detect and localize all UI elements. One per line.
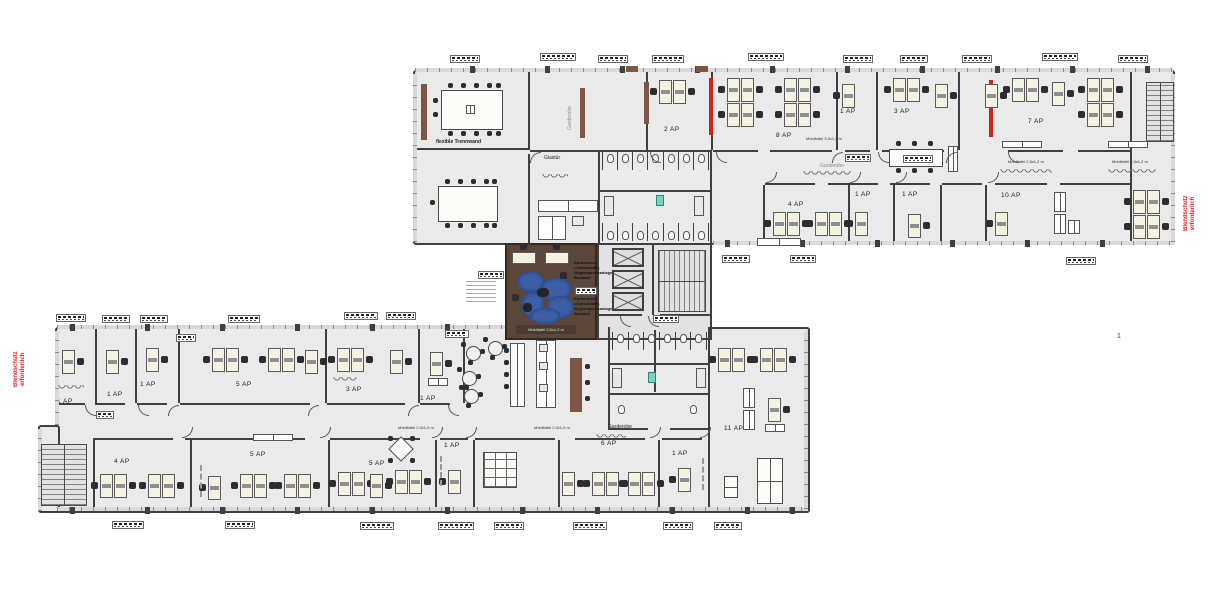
- wall: [328, 440, 330, 511]
- chair: [912, 168, 917, 173]
- partition-label: flexible Trennwand: [436, 139, 481, 145]
- desk: [1147, 215, 1160, 239]
- chair: [471, 223, 476, 228]
- toilet: [607, 231, 614, 240]
- chair: [846, 220, 853, 227]
- desk: [842, 84, 855, 108]
- chair: [1000, 92, 1007, 99]
- room-label: 5 AP: [250, 451, 290, 459]
- room-label: 8 AP: [776, 132, 816, 140]
- desk: [1101, 78, 1114, 102]
- desk: [995, 212, 1008, 236]
- window-band: [804, 331, 808, 509]
- chair: [619, 480, 626, 487]
- annotation-chip: [790, 255, 816, 263]
- desk: [760, 348, 773, 372]
- pillar: [70, 507, 75, 514]
- elevator: [612, 270, 644, 289]
- desk: [62, 350, 75, 374]
- desk: [774, 348, 787, 372]
- chair: [884, 86, 891, 93]
- pillar: [145, 324, 150, 331]
- wall: [135, 327, 137, 403]
- annotation-chip: [494, 522, 524, 530]
- lounge-board-label: Mobiltafel 2,5x1,2 m: [516, 325, 576, 334]
- toilet: [617, 334, 624, 343]
- work-table: [724, 476, 738, 498]
- bar-counter: [510, 343, 525, 407]
- chair: [1162, 223, 1169, 230]
- toilet: [648, 334, 655, 343]
- chair: [783, 406, 790, 413]
- pillar: [950, 240, 955, 247]
- annotation-chip: [1118, 55, 1148, 63]
- annotation-chip: [1042, 53, 1078, 61]
- desk-return: [765, 424, 785, 432]
- chair: [751, 356, 758, 363]
- chair: [496, 83, 501, 88]
- desk: [1133, 215, 1146, 239]
- wall: [440, 438, 468, 440]
- chair: [928, 141, 933, 146]
- pillar: [595, 507, 600, 514]
- wall: [876, 70, 878, 150]
- wall: [890, 183, 930, 185]
- desk: [226, 348, 239, 372]
- stall-divider: [632, 152, 633, 170]
- chair: [457, 367, 462, 372]
- room-label: 7 AP: [1028, 118, 1068, 126]
- wall: [848, 185, 850, 245]
- floor-plan: Mobiltafel 2,5x1,2 m flexible Trennwand …: [0, 0, 1229, 599]
- stall-divider: [693, 152, 694, 170]
- desk: [673, 80, 686, 104]
- wall: [325, 327, 327, 403]
- annotation-chip: [225, 521, 255, 529]
- chair: [718, 86, 725, 93]
- desk: [907, 78, 920, 102]
- chair: [504, 372, 509, 377]
- room-label: 4 AP: [114, 458, 154, 466]
- toilet: [637, 231, 644, 240]
- annotation-chip: [653, 315, 679, 323]
- chair: [912, 141, 917, 146]
- chair: [484, 223, 489, 228]
- annotation-chip: [478, 271, 504, 279]
- wall: [608, 363, 710, 365]
- coat-rail: [333, 377, 357, 384]
- chair: [433, 112, 438, 117]
- desk: [1101, 103, 1114, 127]
- desk: [1087, 78, 1100, 102]
- window-band: [415, 68, 1173, 72]
- chair: [329, 480, 336, 487]
- chair: [775, 111, 782, 118]
- desk: [606, 472, 619, 496]
- annotation-chip: [540, 53, 576, 61]
- chair: [553, 243, 560, 250]
- wall: [765, 183, 815, 185]
- media-board: [580, 88, 585, 138]
- wall: [770, 150, 832, 152]
- desk: [718, 348, 731, 372]
- chair: [756, 86, 763, 93]
- desk: [298, 474, 311, 498]
- desk: [908, 214, 921, 238]
- window-band: [413, 74, 417, 242]
- pillar: [545, 66, 550, 73]
- pillar: [220, 324, 225, 331]
- warning-blendschutz-right: Blendschutz erforderlich: [1183, 183, 1197, 243]
- room-label: 1 AP: [107, 391, 147, 399]
- wall: [330, 438, 420, 440]
- chair: [91, 482, 98, 489]
- vertical-note: [200, 465, 204, 497]
- chair: [492, 179, 497, 184]
- wall: [893, 185, 895, 245]
- desk: [114, 474, 127, 498]
- chair: [487, 83, 492, 88]
- sideboard: [253, 434, 293, 441]
- pillar: [145, 507, 150, 514]
- desk: [162, 474, 175, 498]
- room-label: 1 AP: [140, 381, 180, 389]
- chair: [241, 356, 248, 363]
- chair: [775, 86, 782, 93]
- toilet: [690, 405, 697, 414]
- desk: [1147, 190, 1160, 214]
- toilet: [664, 334, 671, 343]
- vertical-note: [440, 456, 444, 486]
- stall-divider: [647, 223, 648, 241]
- stall-divider: [602, 223, 603, 241]
- chair: [448, 83, 453, 88]
- wall: [418, 327, 420, 403]
- chair: [483, 337, 488, 342]
- chair: [405, 358, 412, 365]
- chair: [275, 482, 282, 489]
- room-label: 1 AP: [855, 191, 895, 199]
- stall-divider: [617, 223, 618, 241]
- desk: [798, 103, 811, 127]
- toilet: [668, 154, 675, 163]
- desk: [268, 348, 281, 372]
- sideboard: [1002, 141, 1042, 148]
- kitchen-counter: [538, 200, 598, 212]
- pillar: [470, 66, 475, 73]
- coat-rail: [1000, 169, 1052, 176]
- stall-divider: [617, 152, 618, 170]
- annotation-chip: [228, 315, 260, 323]
- chair: [458, 179, 463, 184]
- desk: [1087, 103, 1100, 127]
- chair: [764, 220, 771, 227]
- coat-rail: [596, 434, 626, 441]
- desk: [390, 350, 403, 374]
- chair: [328, 356, 335, 363]
- wall: [608, 393, 710, 395]
- core-stair: [658, 250, 706, 312]
- desk: [985, 84, 998, 108]
- desk: [395, 470, 408, 494]
- cabinet: [1054, 214, 1066, 234]
- chair: [388, 436, 393, 441]
- kitchen-appliance: [572, 216, 584, 226]
- chair: [585, 364, 590, 369]
- wall: [413, 148, 530, 150]
- wall: [93, 438, 173, 440]
- chair: [474, 131, 479, 136]
- chair: [560, 272, 567, 279]
- desk: [430, 352, 443, 376]
- wall: [942, 183, 982, 185]
- desk: [305, 350, 318, 374]
- annotation-chip: [56, 314, 86, 322]
- annotation-chip: [445, 330, 469, 338]
- chair: [424, 478, 431, 485]
- annotation-chip: [1066, 257, 1096, 265]
- chair: [896, 141, 901, 146]
- room-label: 2 AP: [664, 126, 704, 134]
- desk: [741, 103, 754, 127]
- wall: [473, 440, 475, 511]
- warning-blendschutz-left: Blendschutz erforderlich: [13, 338, 27, 400]
- toilet: [695, 334, 702, 343]
- toilet: [683, 231, 690, 240]
- chair: [177, 482, 184, 489]
- chair: [1078, 111, 1085, 118]
- toilet: [607, 154, 614, 163]
- chair: [459, 385, 464, 390]
- window-band: [57, 507, 808, 511]
- annotation-chip: [102, 315, 130, 323]
- appliance: [539, 344, 548, 352]
- coat-rail: [803, 171, 851, 178]
- desk: [338, 472, 351, 496]
- desk: [727, 78, 740, 102]
- room-label: 1 AP: [672, 450, 712, 458]
- chair: [1003, 86, 1010, 93]
- stall-divider: [632, 223, 633, 241]
- chair: [789, 356, 796, 363]
- desk: [512, 252, 536, 264]
- sheet-number: 1: [1117, 333, 1121, 340]
- wall: [93, 440, 95, 511]
- chair: [512, 294, 519, 301]
- room-label: 6 AP: [601, 440, 641, 448]
- desk: [855, 212, 868, 236]
- media-board: [644, 82, 649, 124]
- desk: [784, 103, 797, 127]
- annotation-chip: [450, 55, 480, 63]
- stall-divider: [706, 332, 707, 350]
- chair: [1078, 86, 1085, 93]
- desk: [741, 78, 754, 102]
- stall-divider: [602, 152, 603, 170]
- annotation-chip: [903, 155, 933, 163]
- toilet: [698, 154, 705, 163]
- desk: [678, 468, 691, 492]
- chair: [445, 223, 450, 228]
- desk: [254, 474, 267, 498]
- appliance: [539, 362, 548, 370]
- chair: [504, 384, 509, 389]
- annotation-chip: [176, 334, 196, 342]
- desk: [448, 470, 461, 494]
- chair: [833, 92, 840, 99]
- coat-rail: [58, 385, 84, 392]
- sideboard: [1108, 141, 1148, 148]
- chair: [1162, 198, 1169, 205]
- desk: [545, 252, 569, 264]
- elevator: [612, 248, 644, 267]
- chair: [718, 111, 725, 118]
- wall: [528, 70, 530, 148]
- desk: [1026, 78, 1039, 102]
- glass-door-label: Glastür: [544, 155, 560, 161]
- cabinet: [1054, 192, 1066, 212]
- cloakroom-upper-vertical-label: Garderobe: [567, 88, 573, 130]
- wall: [1078, 150, 1130, 152]
- stall-divider: [675, 332, 676, 350]
- desk: [893, 78, 906, 102]
- chair: [320, 358, 327, 365]
- chair: [458, 223, 463, 228]
- wall: [180, 403, 310, 405]
- desk: [773, 212, 786, 236]
- chair: [231, 482, 238, 489]
- chair: [388, 458, 393, 463]
- annotation-chip: [900, 55, 928, 63]
- room-label: 10 AP: [1001, 192, 1041, 200]
- pillar: [670, 507, 675, 514]
- round-table: [466, 346, 481, 361]
- stall-divider: [693, 223, 694, 241]
- chair: [585, 396, 590, 401]
- toilet: [622, 231, 629, 240]
- pillar: [725, 240, 730, 247]
- chair: [430, 200, 435, 205]
- wall: [658, 440, 660, 511]
- wall: [710, 150, 712, 245]
- pillar: [790, 507, 795, 514]
- wc-sink: [612, 368, 622, 388]
- chair: [504, 348, 509, 353]
- desk: [409, 470, 422, 494]
- round-table: [464, 389, 479, 404]
- annotation-chip: [438, 522, 474, 530]
- desk: [787, 212, 800, 236]
- chair: [484, 179, 489, 184]
- toilet: [698, 231, 705, 240]
- chair: [461, 131, 466, 136]
- desk: [1133, 190, 1146, 214]
- annotation-chip: [140, 315, 168, 323]
- toilet: [680, 334, 687, 343]
- chair: [504, 360, 509, 365]
- chair: [950, 92, 957, 99]
- pillar: [995, 66, 1000, 73]
- annex-stair: [41, 444, 87, 506]
- annotation-chip: [344, 312, 378, 320]
- wall: [708, 327, 710, 513]
- wall: [95, 327, 97, 403]
- desk: [732, 348, 745, 372]
- wall: [828, 183, 878, 185]
- desk: [240, 474, 253, 498]
- annotation-chip: [843, 55, 873, 63]
- wall: [608, 327, 610, 430]
- wall: [763, 185, 765, 245]
- desk: [592, 472, 605, 496]
- chair: [461, 342, 466, 347]
- equipment-note-1: Kartenleser, Lichtschalter, Gegensprecha…: [574, 260, 600, 280]
- chair: [410, 436, 415, 441]
- chair: [923, 222, 930, 229]
- red-accent-wall: [709, 78, 713, 135]
- annotation-chip: [845, 154, 871, 162]
- desk: [148, 474, 161, 498]
- wall: [475, 438, 555, 440]
- kitchen-island: [538, 216, 566, 240]
- room-label: 1 AP: [444, 442, 484, 450]
- chair: [386, 478, 393, 485]
- desk: [100, 474, 113, 498]
- chair: [709, 356, 716, 363]
- toilet: [652, 231, 659, 240]
- wall: [845, 150, 870, 152]
- wc-sink: [696, 368, 706, 388]
- chair: [471, 179, 476, 184]
- chair: [448, 131, 453, 136]
- desk: [784, 78, 797, 102]
- desk-return: [428, 378, 448, 386]
- chair: [928, 168, 933, 173]
- desk: [212, 348, 225, 372]
- chair: [468, 360, 473, 365]
- pillar: [520, 507, 525, 514]
- chair: [461, 83, 466, 88]
- wall: [528, 154, 530, 245]
- coat-rail: [1108, 169, 1156, 176]
- chair: [813, 86, 820, 93]
- chair: [259, 356, 266, 363]
- desk: [642, 472, 655, 496]
- equipment-note-2: Kartenleser, Lichtschalter, Gegensprecha…: [574, 296, 600, 316]
- wall: [435, 440, 437, 511]
- desk: [352, 472, 365, 496]
- vertical-note: [702, 458, 706, 490]
- archive-shelf: [483, 452, 517, 488]
- room-label: 4 AP: [788, 201, 828, 209]
- chair: [478, 392, 483, 397]
- room-label: 1 AP: [840, 108, 880, 116]
- annotation-chip: [575, 287, 597, 295]
- pillar: [370, 324, 375, 331]
- toilet: [618, 405, 625, 414]
- room-label: 1 AP: [420, 395, 460, 403]
- desk: [935, 84, 948, 108]
- cafe-shelf: [570, 358, 582, 412]
- desk: [768, 398, 781, 422]
- desk: [208, 476, 221, 500]
- pillar: [1025, 240, 1030, 247]
- desk: [1012, 78, 1025, 102]
- wall: [940, 185, 942, 245]
- annotation-chip: [962, 55, 992, 63]
- annotation-chip: [598, 55, 628, 63]
- chair: [688, 88, 695, 95]
